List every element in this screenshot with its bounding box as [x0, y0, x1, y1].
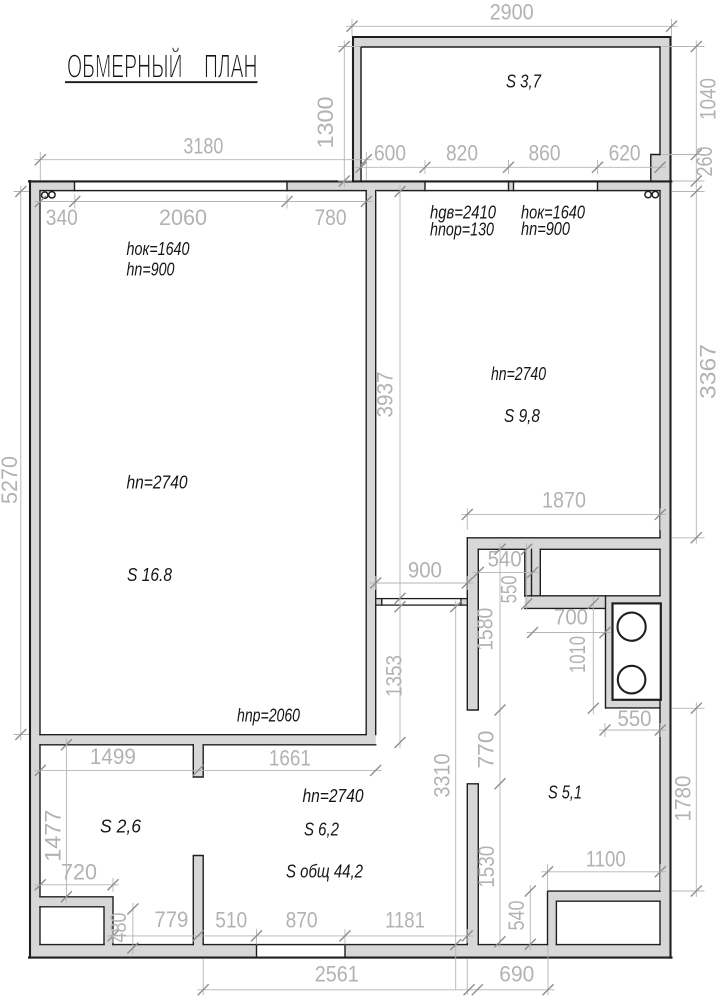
svg-text:2900: 2900 — [490, 0, 534, 25]
svg-text:3180: 3180 — [183, 134, 223, 159]
svg-text:1010: 1010 — [565, 636, 590, 673]
svg-text:620: 620 — [609, 140, 641, 165]
svg-text:hn=2740: hn=2740 — [491, 364, 546, 384]
svg-text:1580: 1580 — [473, 608, 498, 651]
svg-text:hn=2740: hn=2740 — [303, 786, 364, 806]
svg-text:hn=2740: hn=2740 — [127, 473, 188, 493]
svg-text:ОБМЕРНЫЙ: ОБМЕРНЫЙ — [67, 48, 183, 85]
svg-text:S 6,2: S 6,2 — [304, 820, 339, 840]
svg-text:1181: 1181 — [385, 908, 425, 933]
svg-text:hnор=130: hnор=130 — [430, 220, 494, 240]
svg-text:780: 780 — [315, 205, 347, 230]
svg-text:3310: 3310 — [430, 754, 455, 798]
svg-text:1477: 1477 — [41, 810, 66, 862]
svg-text:900: 900 — [408, 558, 442, 583]
svg-text:3937: 3937 — [373, 372, 398, 418]
svg-text:hnр=2060: hnр=2060 — [237, 706, 300, 726]
svg-text:1100: 1100 — [586, 847, 626, 872]
svg-text:720: 720 — [61, 860, 97, 885]
svg-text:S 2,6: S 2,6 — [100, 817, 142, 837]
svg-text:260: 260 — [692, 147, 717, 177]
svg-text:ПЛАН: ПЛАН — [204, 48, 258, 85]
svg-text:700: 700 — [554, 605, 588, 630]
svg-text:340: 340 — [46, 205, 78, 230]
svg-text:540: 540 — [504, 901, 529, 931]
svg-text:779: 779 — [154, 907, 188, 932]
svg-text:870: 870 — [286, 908, 318, 933]
svg-text:540: 540 — [488, 547, 522, 572]
svg-text:550: 550 — [618, 706, 652, 731]
svg-text:480: 480 — [106, 913, 131, 943]
svg-text:S 9,8: S 9,8 — [504, 406, 540, 426]
svg-text:1780: 1780 — [671, 776, 696, 822]
svg-text:S 3,7: S 3,7 — [506, 72, 542, 92]
svg-text:hn=900: hn=900 — [127, 260, 175, 280]
svg-text:770: 770 — [474, 731, 499, 769]
svg-text:1353: 1353 — [382, 655, 407, 697]
svg-text:S общ 44,2: S общ 44,2 — [286, 862, 363, 882]
svg-text:510: 510 — [215, 908, 247, 933]
svg-text:S 5,1: S 5,1 — [548, 783, 582, 803]
svg-text:hок=1640: hок=1640 — [127, 239, 190, 259]
svg-text:3367: 3367 — [696, 344, 721, 399]
svg-text:1499: 1499 — [90, 744, 136, 769]
svg-text:820: 820 — [446, 140, 478, 165]
svg-text:1300: 1300 — [313, 97, 338, 149]
svg-text:2060: 2060 — [159, 205, 207, 230]
svg-text:hn=900: hn=900 — [521, 219, 570, 239]
svg-text:1040: 1040 — [696, 78, 721, 120]
svg-text:690: 690 — [499, 962, 534, 987]
svg-text:1870: 1870 — [542, 488, 586, 513]
svg-text:600: 600 — [374, 140, 406, 165]
svg-text:1661: 1661 — [269, 746, 311, 771]
svg-text:S 16.8: S 16.8 — [127, 565, 172, 585]
svg-text:860: 860 — [529, 140, 561, 165]
svg-text:2561: 2561 — [315, 962, 359, 987]
svg-text:1530: 1530 — [474, 846, 499, 888]
svg-text:550: 550 — [497, 575, 522, 603]
svg-text:5270: 5270 — [0, 456, 22, 504]
